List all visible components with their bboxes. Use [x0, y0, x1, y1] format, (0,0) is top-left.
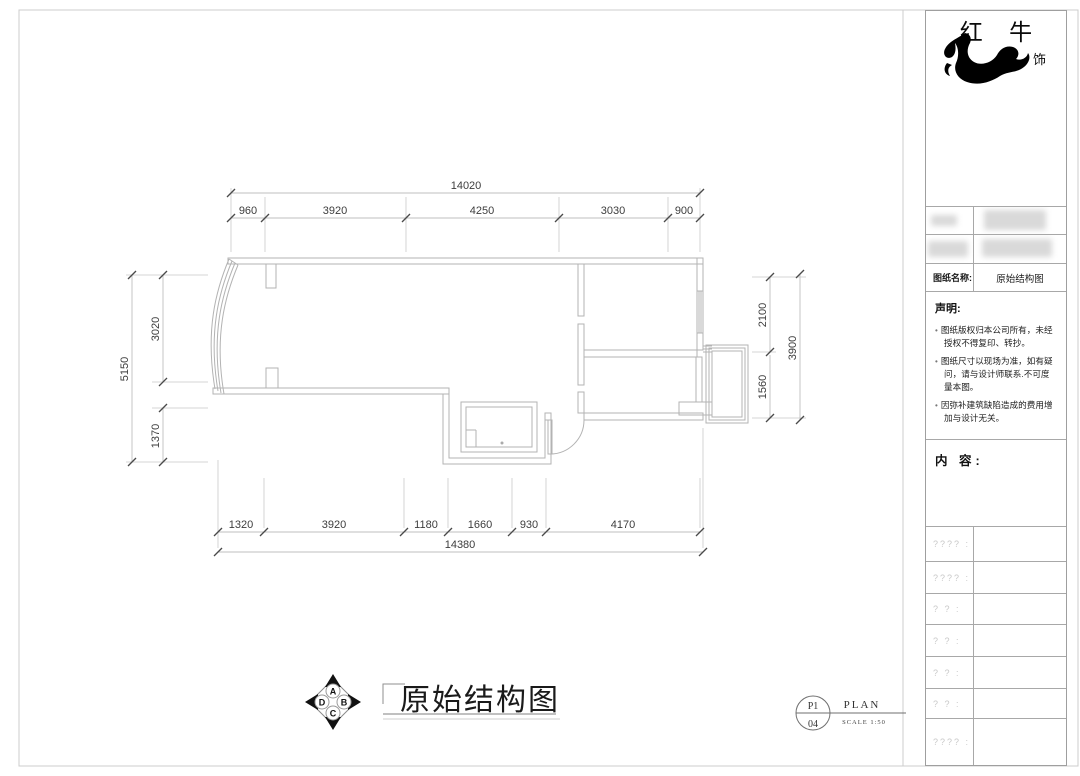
titleblock-row-drawing-name: 图纸名称: 原始结构图 — [926, 263, 1066, 291]
dim-top-1: 960 — [239, 205, 257, 217]
titleblock-row-field: ???? : — [926, 718, 1066, 765]
drawing-name-label: 图纸名称: — [933, 271, 972, 284]
titleblock-row-field: ???? : — [926, 526, 1066, 561]
dim-left-2: 1370 — [150, 424, 162, 448]
titleblock-row-field: ? ? : — [926, 656, 1066, 688]
redacted-cell — [926, 207, 974, 234]
field-value-empty — [974, 594, 1066, 624]
dim-bot-6: 4170 — [611, 519, 635, 531]
dim-top-5: 900 — [675, 205, 693, 217]
dim-right-total: 3900 — [787, 336, 799, 360]
footer-title-block: 原始结构图 — [383, 684, 560, 719]
field-value-empty — [974, 625, 1066, 656]
declaration-item-text: 图纸尺寸以现场为准，如有疑问，请与设计师联系.不可度量本图。 — [941, 356, 1053, 392]
bullet-icon: • — [935, 401, 938, 410]
direction-compass: A B C D — [305, 674, 361, 730]
titleblock-row-field: ? ? : — [926, 593, 1066, 624]
plan-label: PLAN — [844, 699, 881, 711]
declaration-item: •因弥补建筑缺陷造成的费用增加与设计无关。 — [935, 399, 1058, 425]
dim-right-2: 1560 — [757, 375, 769, 399]
title-block: 红 牛 装 饰 图纸名称: 原始结构图 声明: •图纸版权归本公司所有，未经授权… — [925, 10, 1067, 766]
redacted-text — [984, 210, 1046, 230]
titleblock-row-field: ???? : — [926, 561, 1066, 593]
declaration-box: 声明: •图纸版权归本公司所有，未经授权不得复印、转抄。 •图纸尺寸以现场为准，… — [926, 291, 1066, 439]
compass-letter-d: D — [319, 698, 326, 708]
redacted-cell — [926, 235, 974, 263]
field-label-placeholder: ? ? : — [933, 604, 961, 614]
dim-bot-4: 1660 — [468, 519, 492, 531]
floor-plan-walls — [211, 258, 748, 464]
titleblock-row-field: ? ? : — [926, 624, 1066, 656]
drawing-sheet: 14020 960 3920 4250 3030 900 1320 3920 1… — [0, 0, 1080, 776]
dim-bot-5: 930 — [520, 519, 538, 531]
redacted-text — [982, 239, 1052, 257]
titleblock-row-redacted-2 — [926, 234, 1066, 263]
dim-top-total: 14020 — [451, 180, 482, 192]
dim-top-4: 3030 — [601, 205, 625, 217]
dim-left-1: 3020 — [150, 317, 162, 341]
field-value-empty — [974, 689, 1066, 718]
field-label-placeholder: ? ? : — [933, 668, 961, 678]
declaration-title: 声明: — [935, 300, 1058, 316]
brand-logo — [926, 27, 1046, 97]
dim-bot-1: 1320 — [229, 519, 253, 531]
declaration-item-text: 图纸版权归本公司所有，未经授权不得复印、转抄。 — [941, 325, 1053, 348]
dim-right-1: 2100 — [757, 303, 769, 327]
dim-bot-2: 3920 — [322, 519, 346, 531]
field-label-placeholder: ???? : — [933, 737, 970, 747]
compass-letter-c: C — [330, 709, 337, 719]
bullet-icon: • — [935, 357, 938, 366]
field-label-placeholder: ???? : — [933, 539, 970, 549]
field-value-empty — [974, 562, 1066, 593]
sheet-number-badge: P1 04 PLAN SCALE 1:50 — [796, 696, 906, 730]
compass-letter-b: B — [341, 698, 348, 708]
redacted-cell — [974, 235, 1066, 263]
footer-drawing-title: 原始结构图 — [400, 684, 560, 717]
redacted-cell — [974, 207, 1066, 234]
redacted-text — [931, 215, 957, 226]
dim-left-total: 5150 — [119, 357, 131, 381]
field-label-placeholder: ? ? : — [933, 699, 961, 709]
content-box: 内 容: — [926, 439, 1066, 526]
field-label-placeholder: ???? : — [933, 573, 970, 583]
compass-letter-a: A — [330, 687, 337, 697]
field-label-placeholder: ? ? : — [933, 636, 961, 646]
bullet-icon: • — [935, 326, 938, 335]
scale-label: SCALE 1:50 — [842, 719, 886, 726]
dim-top-3: 4250 — [470, 205, 494, 217]
field-value-empty — [974, 719, 1066, 765]
drawing-name-value: 原始结构图 — [996, 271, 1044, 285]
dim-extension-lines — [126, 188, 806, 548]
dim-bottom-total: 14380 — [445, 539, 476, 551]
declaration-item: •图纸尺寸以现场为准，如有疑问，请与设计师联系.不可度量本图。 — [935, 355, 1058, 394]
field-value-empty — [974, 657, 1066, 688]
field-value-empty — [974, 527, 1066, 561]
brand-logo-box: 红 牛 装 饰 — [926, 11, 1066, 206]
declaration-item-text: 因弥补建筑缺陷造成的费用增加与设计无关。 — [941, 400, 1053, 423]
dim-bot-3: 1180 — [414, 519, 438, 531]
content-label: 内 容: — [935, 450, 1058, 469]
plan-canvas: 14020 960 3920 4250 3030 900 1320 3920 1… — [0, 0, 1080, 776]
titleblock-row-field: ? ? : — [926, 688, 1066, 718]
redacted-text — [928, 241, 968, 257]
dim-top-2: 3920 — [323, 205, 347, 217]
declaration-item: •图纸版权归本公司所有，未经授权不得复印、转抄。 — [935, 324, 1058, 350]
sheet-border — [19, 10, 1078, 766]
sheet-no-bottom: 04 — [808, 719, 818, 730]
sheet-no-top: P1 — [808, 701, 819, 712]
titleblock-row-redacted-1 — [926, 206, 1066, 234]
